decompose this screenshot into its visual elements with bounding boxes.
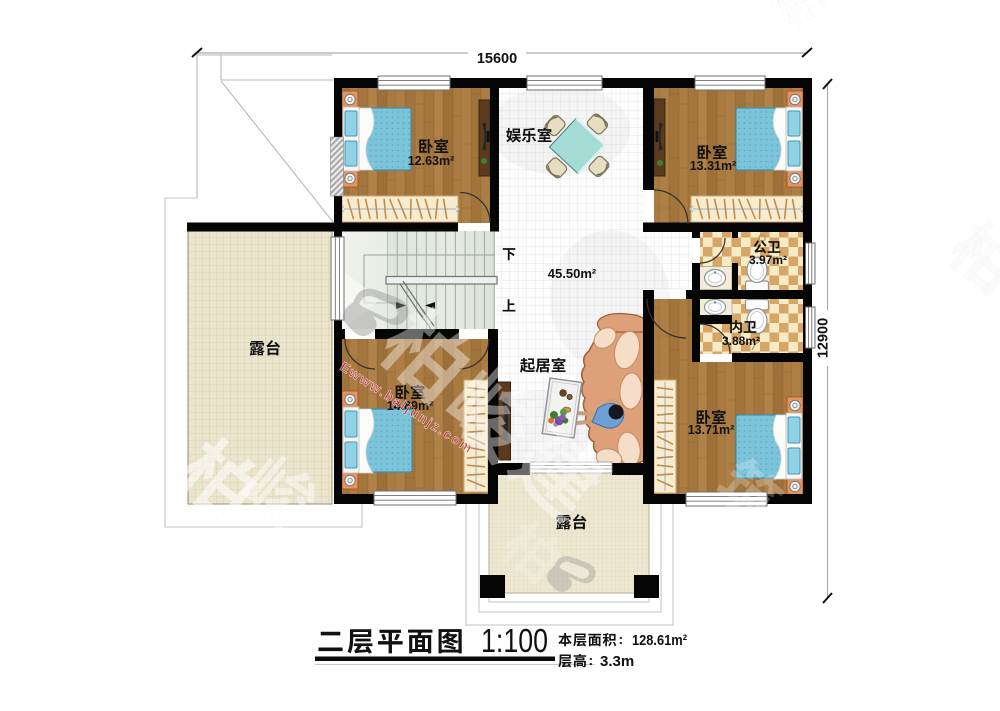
svg-text:128.61m²: 128.61m² [632,632,687,649]
svg-text:13.71m²: 13.71m² [688,423,735,437]
svg-text:13.31m²: 13.31m² [690,159,737,173]
svg-text:15600: 15600 [477,51,517,67]
svg-text:3.88m²: 3.88m² [722,334,760,348]
svg-text:1:100: 1:100 [481,622,548,659]
svg-text:12900: 12900 [815,318,831,358]
svg-text:45.50m²: 45.50m² [548,266,597,281]
svg-text:3.97m²: 3.97m² [749,253,787,267]
svg-text::: : [589,652,594,668]
svg-text:3.3m: 3.3m [600,653,634,670]
svg-text::: : [619,631,624,647]
svg-text:12.63m²: 12.63m² [408,154,455,168]
